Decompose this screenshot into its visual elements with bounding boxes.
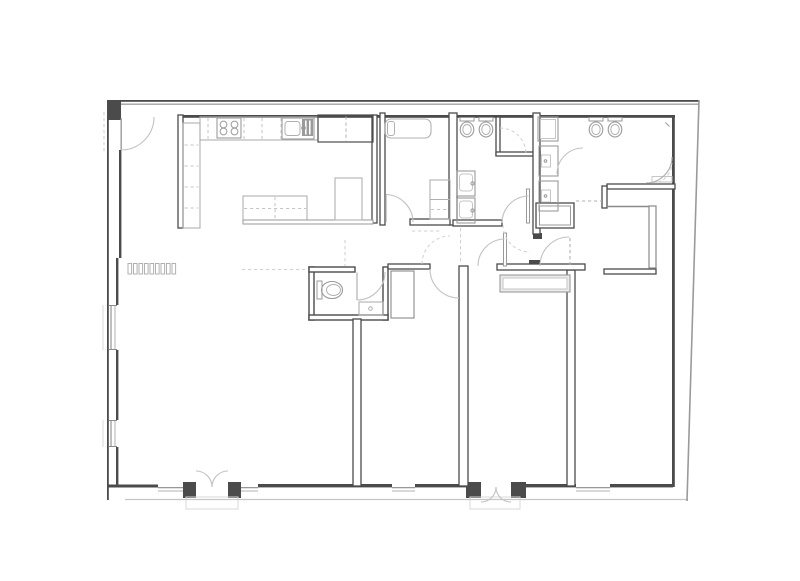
- radiator-segment-3: [139, 264, 143, 275]
- outer-wall-top-line: [107, 100, 699, 102]
- bed-pillow: [388, 122, 395, 136]
- bottom-wall-seg5: [610, 484, 673, 487]
- toilet-d-mount: [608, 118, 622, 122]
- shower1-wall-vertical: [496, 117, 500, 155]
- bathroom2-sink-a-bowl: [542, 155, 551, 167]
- bathroom1-sink-b-bowl: [460, 201, 473, 218]
- patio-door1-leaf-left-arc: [196, 471, 212, 487]
- radiator-segment-7: [161, 264, 165, 275]
- entry-partition-wall: [178, 115, 183, 228]
- radiator-segment-1: [128, 264, 132, 275]
- patio-door1-jamb-right: [228, 482, 241, 498]
- left-wall-inner-seg3: [116, 350, 118, 420]
- bedroom3-wardrobe-inner: [503, 278, 567, 289]
- radiator-segment-2: [134, 264, 138, 275]
- bottom-wall-seg1: [107, 485, 158, 488]
- outer-wall-top-line-inner: [107, 104, 699, 105]
- bathroom1-sink-a-bowl: [460, 174, 473, 191]
- shower2-arc-dash: [652, 163, 672, 183]
- bathroom2-cabinet-inner: [541, 120, 556, 139]
- island-stool-table: [335, 178, 362, 220]
- radiator-segment-6: [156, 264, 160, 275]
- hallway-wall-b: [497, 264, 585, 270]
- wc-right-wall: [383, 267, 388, 320]
- wc-sink: [359, 302, 383, 315]
- dish-rack-slot2: [309, 121, 311, 135]
- entry-door-arc: [121, 117, 154, 150]
- cooktop: [217, 118, 241, 138]
- bedroom3-door-arc: [478, 239, 505, 266]
- wc-toilet-bowl-inner: [327, 285, 341, 296]
- shower2-arc: [646, 157, 672, 183]
- dish-rack: [302, 119, 313, 136]
- toilet-a-bowl-inner: [463, 125, 471, 135]
- bedroom2-door-arc: [430, 269, 459, 298]
- bathroom1-door-arc: [502, 196, 529, 223]
- bedroom1-bottom-wall: [410, 219, 450, 225]
- bedroom1-door-arc: [386, 195, 414, 223]
- patio-door2-threshold: [470, 497, 520, 509]
- patio-door1-leaf-right-arc: [212, 471, 228, 487]
- hallway-wall-a: [388, 264, 430, 269]
- tall-cabinet-column: [183, 123, 200, 228]
- closet-bottom-wall: [604, 269, 656, 274]
- bathroom2-bottom-wall: [607, 184, 675, 189]
- patio-door2-jamb-right: [511, 482, 526, 498]
- partition-bedroom2-left: [353, 319, 361, 486]
- toilet-b-mount: [479, 118, 493, 122]
- left-wall-inner-seg4: [116, 447, 118, 487]
- outer-wall-left-line: [107, 100, 109, 500]
- closet-wardrobe-side: [649, 206, 656, 268]
- patio-door1-jamb-left: [183, 482, 196, 498]
- wc-door-arc: [357, 272, 385, 300]
- wc-toilet-bowl: [322, 282, 343, 299]
- corner-block-top-left: [107, 100, 121, 120]
- toilet-d-bowl-inner: [611, 125, 619, 135]
- radiator-segment-4: [145, 264, 149, 275]
- closet-wall-stub: [602, 186, 607, 208]
- hall-swing-dash-arc-1: [503, 225, 530, 252]
- bedroom1-left-wall: [380, 113, 385, 225]
- bathroom2-sink-b-tap: [544, 195, 547, 198]
- radiator-segment-9: [172, 264, 176, 275]
- left-wall-inner-seg2: [116, 258, 118, 305]
- right-outer-face: [687, 100, 699, 501]
- vestibule-door-arc: [540, 237, 570, 266]
- floor-plan: [0, 0, 800, 581]
- bathroom2-sink-a-tap: [544, 160, 547, 163]
- radiator-segment-5: [150, 264, 154, 275]
- toilet-b-bowl-inner: [482, 125, 490, 135]
- right-wall-inner: [672, 115, 675, 487]
- bathroom2-sink-b-bowl: [542, 190, 551, 202]
- hall-swing-dash-arc-2: [422, 236, 450, 264]
- bathroom2-corner-tick: [666, 123, 670, 127]
- toilet-a-mount: [460, 118, 474, 122]
- patio-door1-threshold: [186, 497, 238, 509]
- partition-bedroom2-right: [459, 266, 468, 486]
- bottom-wall-seg2: [258, 484, 392, 487]
- washing-machine: [536, 203, 574, 228]
- bathroom2-door-arc: [557, 148, 583, 174]
- toilet-c-mount: [589, 118, 603, 122]
- duct-shaft: [391, 271, 414, 318]
- wc-bottom-wall: [309, 315, 388, 320]
- wc-top-wall: [309, 267, 355, 272]
- partition-bedroom3-right: [567, 270, 575, 486]
- island-bar-counter: [243, 220, 373, 224]
- kitchen-sink-bowl: [285, 122, 300, 136]
- radiator-segment-8: [167, 264, 171, 275]
- floor-plan-svg: [0, 0, 800, 581]
- left-wall-inner-seg1: [119, 150, 121, 258]
- wc-sink-drain: [369, 307, 373, 311]
- wc-left-wall: [309, 267, 314, 320]
- toilet-c-bowl-inner: [592, 125, 600, 135]
- bathroom1-door-leaf: [527, 189, 530, 223]
- shower1-door-arc-dash: [500, 128, 526, 154]
